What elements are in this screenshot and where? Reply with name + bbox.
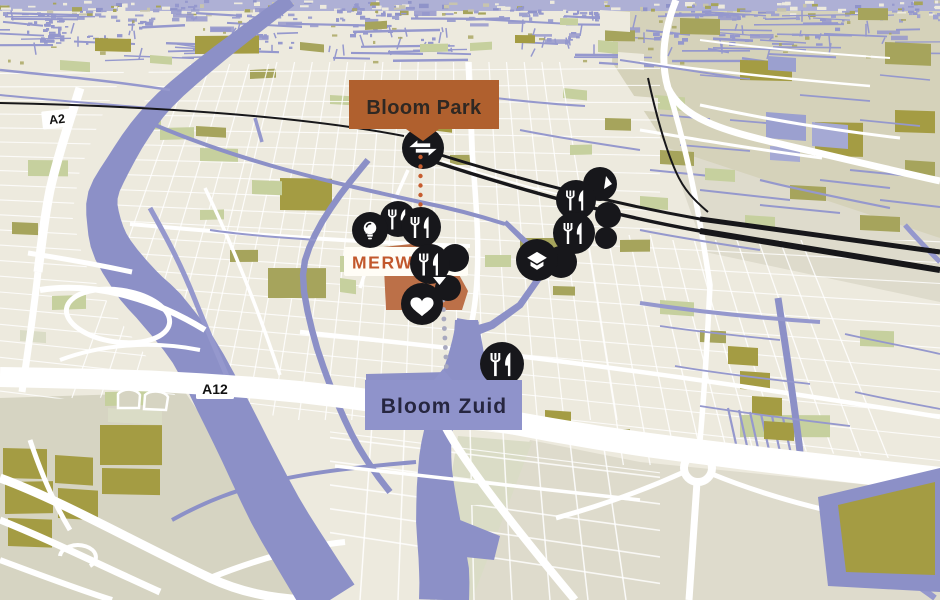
svg-text:A2: A2 bbox=[48, 112, 65, 128]
svg-text:Bloom Park: Bloom Park bbox=[366, 97, 482, 119]
svg-text:Bloom Zuid: Bloom Zuid bbox=[381, 395, 507, 418]
svg-text:A12: A12 bbox=[202, 381, 228, 397]
